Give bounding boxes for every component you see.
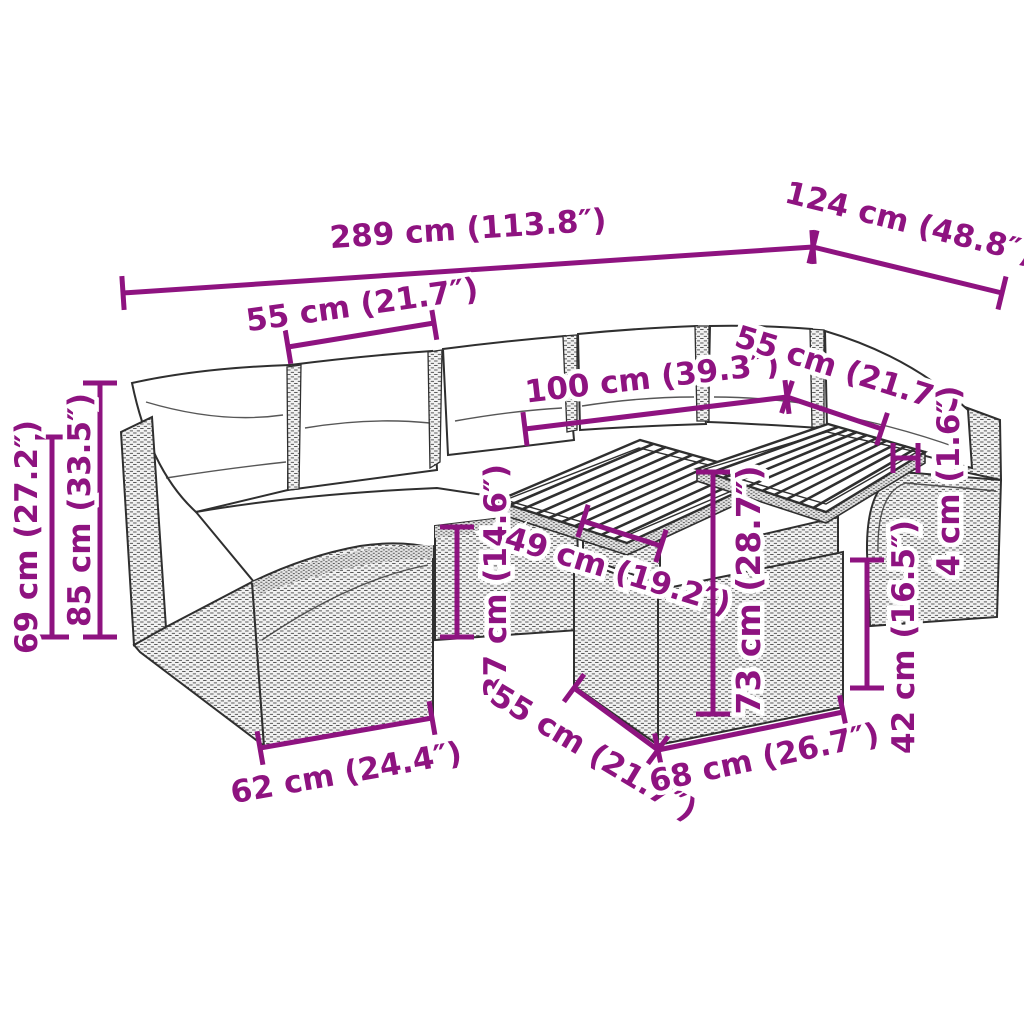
dimension-label-total-width: 289 cm (113.8″) [329, 202, 608, 256]
cushion-seam [287, 365, 301, 490]
dimension-back-height: 69 cm (27.2″) [9, 420, 69, 654]
dimension-label-tabletop-gap: 4 cm (1.6″) [931, 386, 967, 577]
dimension-label-total-height: 85 cm (33.5″) [62, 393, 98, 627]
dimension-line [285, 330, 291, 364]
dimension-label-seat-height: 37 cm (14.6″) [478, 464, 514, 698]
dimension-label-arm-height: 42 cm (16.5″) [886, 520, 922, 754]
dimension-line [429, 701, 435, 734]
back-cushion [288, 351, 437, 490]
dimension-diagram: Dimension diagram of a poly rattan garde… [0, 0, 1024, 1024]
dimension-label-back-height: 69 cm (27.2″) [9, 420, 45, 654]
dimension-line [122, 276, 124, 310]
dimension-label-table-height: 73 cm (28.7″) [729, 465, 768, 714]
dimension-total-height: 85 cm (33.5″) [62, 383, 117, 637]
dimension-label-total-depth: 124 cm (48.8″) [781, 175, 1024, 272]
dimension-total-depth: 124 cm (48.8″) [781, 175, 1024, 310]
diagram-canvas: Dimension diagram of a poly rattan garde… [0, 0, 1024, 1024]
cushion-seam [428, 350, 442, 468]
